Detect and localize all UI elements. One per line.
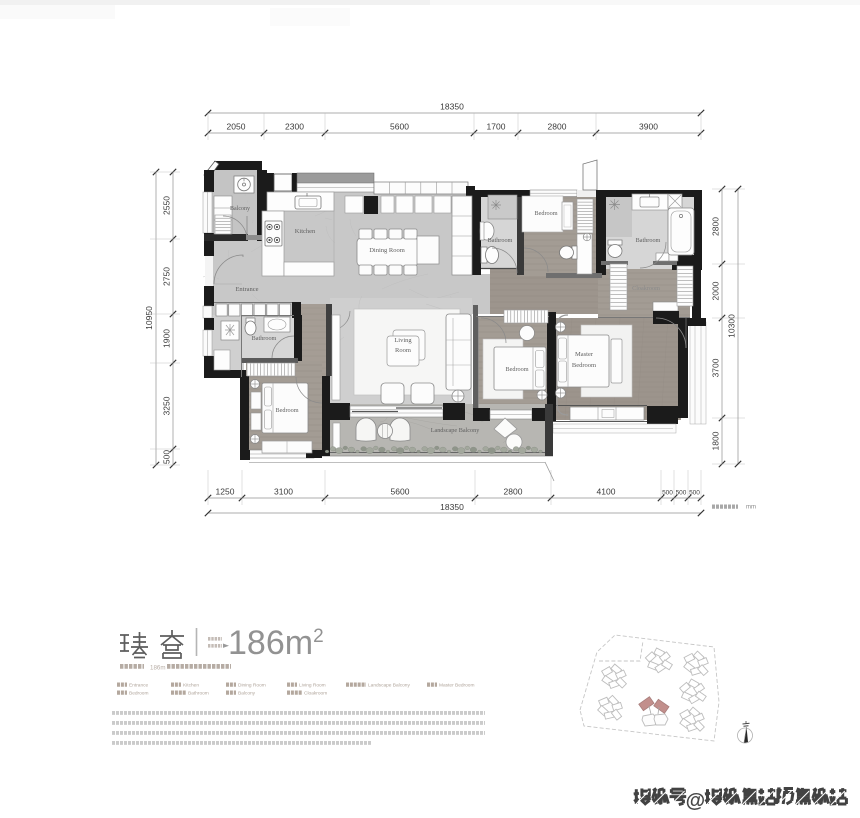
svg-text:Room: Room [395,347,411,354]
svg-text:5600: 5600 [390,122,409,132]
svg-text:500: 500 [689,490,700,497]
svg-text:Bathroom: Bathroom [636,237,661,244]
svg-text:Bedroom: Bedroom [534,210,557,217]
svg-text:Living Room: Living Room [299,683,326,689]
svg-text:Entrance: Entrance [235,286,258,293]
svg-text:3250: 3250 [162,396,172,415]
svg-text:10300: 10300 [727,314,737,338]
svg-text:Landscape Balcony: Landscape Balcony [368,683,410,689]
svg-text:@: @ [686,790,706,812]
svg-text:Bedroom: Bedroom [275,407,298,414]
svg-text:2750: 2750 [162,267,172,286]
svg-text:2300: 2300 [285,122,304,132]
svg-text:2800: 2800 [711,217,721,236]
svg-text:Master: Master [575,351,594,358]
svg-text:2550: 2550 [162,196,172,215]
svg-text:1700: 1700 [487,122,506,132]
svg-text:1250: 1250 [216,487,235,497]
svg-text:1800: 1800 [711,431,721,450]
svg-text:500: 500 [662,490,673,497]
svg-text:Bathroom: Bathroom [488,237,513,244]
svg-text:3900: 3900 [639,122,658,132]
svg-text:18350: 18350 [440,502,464,512]
svg-text:500: 500 [676,490,687,497]
svg-text:Landscape Balcony: Landscape Balcony [431,427,481,434]
svg-text:Master Bedroom: Master Bedroom [439,683,474,689]
svg-text:Living: Living [394,337,412,344]
svg-text:186m: 186m [150,665,165,672]
svg-text:500: 500 [162,450,172,464]
svg-text:Bedroom: Bedroom [505,366,528,373]
svg-text:10950: 10950 [144,306,154,330]
svg-text:Bedroom: Bedroom [572,362,596,369]
svg-text:2800: 2800 [548,122,567,132]
svg-text:Dining Room: Dining Room [369,247,405,254]
svg-text:Bedroom: Bedroom [129,691,148,697]
svg-text:Dining Room: Dining Room [238,683,266,689]
svg-text:Bathroom: Bathroom [252,335,277,342]
svg-text:mm: mm [746,505,756,511]
svg-text:Cloakroom: Cloakroom [304,691,327,697]
svg-text:3700: 3700 [711,358,721,377]
svg-text:Kitchen: Kitchen [183,683,199,689]
svg-text:Cloakroom: Cloakroom [632,285,660,292]
svg-text:1900: 1900 [162,329,172,348]
svg-text:186m2: 186m2 [228,624,324,662]
svg-text:5600: 5600 [391,487,410,497]
svg-text:Entrance: Entrance [129,683,149,689]
svg-text:3100: 3100 [274,487,293,497]
svg-text:2050: 2050 [227,122,246,132]
svg-text:Kitchen: Kitchen [295,228,316,235]
svg-text:2800: 2800 [504,487,523,497]
svg-text:2000: 2000 [711,281,721,300]
svg-text:Balcony: Balcony [230,206,250,212]
svg-text:4100: 4100 [597,487,616,497]
svg-text:18350: 18350 [440,102,464,112]
svg-text:Bathroom: Bathroom [188,691,209,697]
svg-text:Balcony: Balcony [238,691,256,697]
